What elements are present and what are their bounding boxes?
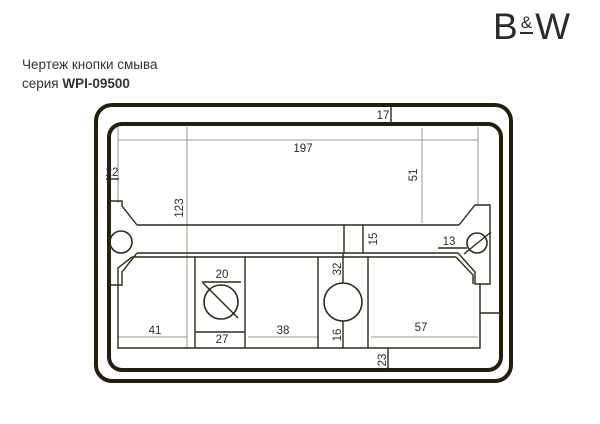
button-circle-20 (204, 285, 238, 319)
lower-plate-body (118, 257, 480, 348)
dimension-labels: 17 197 22 51 123 15 13 20 32 41 27 38 16… (106, 110, 456, 366)
dim-label-13: 13 (443, 236, 456, 248)
dim-label-32: 32 (332, 263, 344, 276)
dim-label-123: 123 (174, 198, 186, 217)
dim-label-15: 15 (368, 233, 380, 246)
dim-label-20: 20 (216, 269, 229, 281)
dim-label-16: 16 (332, 329, 344, 342)
dim-label-23: 23 (377, 354, 389, 367)
technical-drawing: 17 197 22 51 123 15 13 20 32 41 27 38 16… (0, 0, 600, 424)
holes-and-buttons (110, 231, 487, 321)
dim-label-41: 41 (149, 325, 162, 337)
dim-label-22: 22 (106, 167, 119, 179)
mounting-hole-left (110, 231, 132, 253)
left-tab (110, 201, 137, 285)
dim-label-57: 57 (415, 322, 428, 334)
dim-label-38: 38 (277, 325, 290, 337)
dim-label-197: 197 (293, 143, 312, 155)
right-tab (458, 205, 490, 284)
dim-label-17: 17 (377, 110, 390, 122)
dim-label-51: 51 (408, 169, 420, 182)
button-circle-32 (324, 283, 362, 321)
dim-label-27: 27 (216, 334, 229, 346)
construction-lines (118, 127, 478, 348)
